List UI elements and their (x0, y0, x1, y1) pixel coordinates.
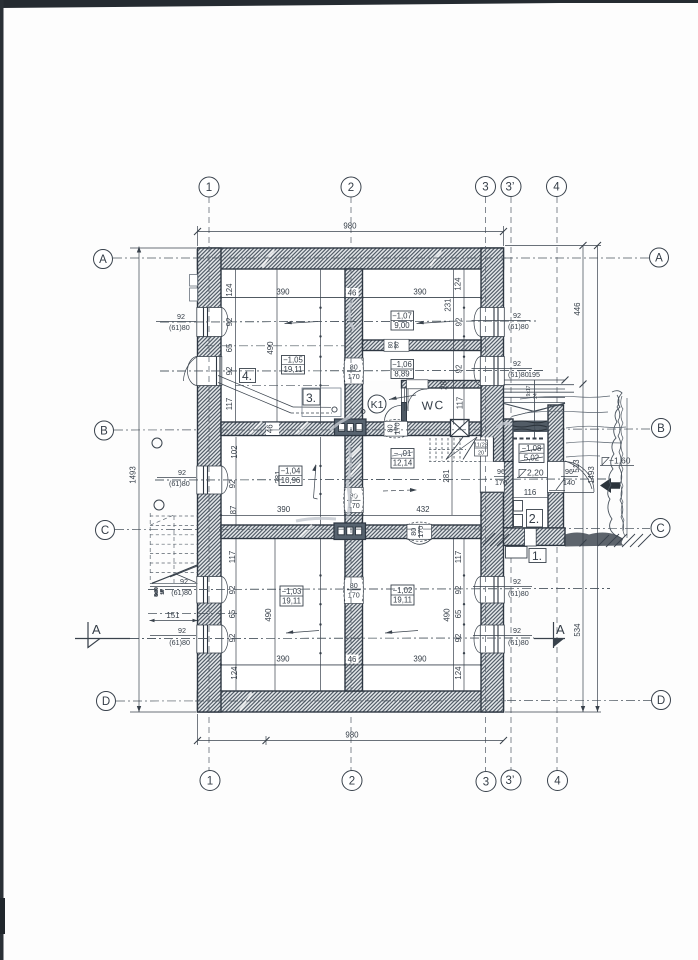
svg-text:2: 2 (348, 182, 354, 194)
svg-text:−1,05: −1,05 (283, 356, 303, 365)
svg-text:151: 151 (166, 611, 179, 620)
svg-text:92: 92 (513, 311, 521, 320)
svg-text:281: 281 (442, 469, 451, 482)
svg-text:170: 170 (393, 423, 402, 435)
svg-text:WC: WC (421, 398, 445, 413)
svg-text:92: 92 (177, 312, 185, 321)
svg-text:92: 92 (455, 318, 464, 327)
svg-text:A: A (92, 622, 101, 637)
svg-text:(61)80: (61)80 (508, 322, 529, 331)
svg-text:170: 170 (348, 591, 360, 600)
svg-text:−1,07: −1,07 (392, 312, 412, 321)
svg-text:390: 390 (276, 655, 290, 664)
svg-text:96: 96 (565, 467, 573, 476)
svg-text:10,96: 10,96 (281, 476, 301, 485)
svg-text:390: 390 (413, 655, 427, 664)
svg-text:−1,04: −1,04 (281, 467, 301, 476)
svg-text:−1,02: −1,02 (393, 586, 413, 595)
svg-text:2: 2 (349, 776, 355, 788)
svg-text:92: 92 (178, 468, 186, 477)
svg-text:19,11: 19,11 (284, 365, 303, 374)
svg-text:980: 980 (343, 222, 357, 231)
svg-text:D: D (102, 696, 110, 708)
svg-text:(61)80: (61)80 (169, 479, 190, 488)
svg-text:92: 92 (228, 634, 237, 643)
svg-text:19,11: 19,11 (282, 597, 301, 606)
svg-text:1493: 1493 (129, 466, 138, 484)
svg-text:390: 390 (276, 288, 290, 297)
svg-text:231: 231 (444, 298, 453, 311)
svg-text:980: 980 (345, 731, 359, 740)
svg-text:195: 195 (528, 370, 540, 379)
svg-text:65: 65 (225, 343, 234, 352)
svg-text:19,11: 19,11 (393, 596, 412, 605)
svg-text:3: 3 (483, 777, 489, 789)
svg-text:1: 1 (207, 776, 213, 788)
svg-text:92: 92 (178, 626, 186, 635)
svg-text:3: 3 (482, 182, 488, 194)
svg-text:92: 92 (513, 577, 521, 586)
svg-text:432: 432 (416, 505, 429, 514)
svg-text:390: 390 (277, 505, 291, 514)
svg-text:5x30: 5x30 (154, 587, 159, 597)
svg-text:490: 490 (443, 608, 452, 622)
svg-text:170: 170 (348, 372, 360, 381)
svg-text:46: 46 (266, 424, 275, 433)
svg-text:96: 96 (497, 467, 505, 476)
svg-text:24: 24 (533, 393, 539, 399)
svg-text:65: 65 (454, 609, 463, 618)
svg-text:170: 170 (416, 526, 425, 538)
svg-text:12,14: 12,14 (393, 459, 413, 468)
svg-text:117: 117 (456, 397, 465, 410)
svg-text:124: 124 (230, 666, 239, 680)
svg-text:−1,06: −1,06 (392, 360, 412, 369)
svg-text:A: A (99, 254, 107, 266)
svg-text:−1,03: −1,03 (282, 587, 302, 596)
svg-text:490: 490 (264, 608, 273, 622)
svg-text:3’: 3’ (506, 775, 515, 787)
svg-text:92: 92 (228, 480, 237, 489)
svg-text:390: 390 (413, 288, 427, 297)
svg-text:A: A (655, 253, 663, 265)
svg-text:1: 1 (206, 182, 212, 194)
svg-text:C: C (656, 523, 664, 535)
svg-text:65: 65 (228, 609, 237, 618)
svg-text:92: 92 (454, 586, 463, 595)
svg-text:3.: 3. (306, 391, 316, 405)
svg-text:490: 490 (266, 341, 275, 355)
svg-text:A: A (556, 622, 565, 637)
svg-text:1.: 1. (532, 549, 542, 563)
svg-text:92: 92 (228, 586, 237, 595)
svg-text:28: 28 (440, 381, 449, 390)
svg-text:D: D (657, 695, 665, 707)
svg-text:92: 92 (455, 365, 464, 374)
svg-text:92: 92 (513, 626, 521, 635)
svg-text:87: 87 (229, 506, 238, 515)
svg-text:9,00: 9,00 (394, 321, 410, 330)
svg-text:(61)80: (61)80 (508, 589, 529, 598)
svg-text:446: 446 (573, 302, 582, 316)
svg-text:116: 116 (524, 488, 537, 497)
svg-text:9x17: 9x17 (526, 385, 532, 396)
svg-text:K1: K1 (371, 399, 384, 411)
svg-text:4: 4 (554, 776, 561, 788)
svg-text:124: 124 (454, 277, 463, 291)
svg-text:124: 124 (225, 283, 234, 297)
svg-text:(61)80: (61)80 (508, 638, 529, 647)
svg-text:46: 46 (348, 289, 357, 298)
svg-text:117: 117 (454, 551, 463, 564)
svg-text:102: 102 (230, 445, 239, 458)
svg-text:C: C (101, 525, 109, 537)
svg-text:(61)80: (61)80 (169, 323, 190, 332)
svg-text:534: 534 (573, 623, 582, 637)
svg-text:2,20: 2,20 (527, 468, 544, 478)
svg-text:46: 46 (348, 655, 357, 664)
svg-text:117: 117 (225, 398, 234, 411)
svg-text:20: 20 (478, 451, 484, 457)
svg-text:B: B (100, 426, 108, 438)
svg-text:B: B (657, 423, 665, 435)
svg-text:124: 124 (454, 666, 463, 680)
svg-text:(61)80: (61)80 (169, 638, 190, 647)
svg-text:3’: 3’ (506, 182, 515, 194)
svg-text:80: 80 (395, 341, 401, 348)
svg-text:92: 92 (513, 359, 521, 368)
svg-text:(61)80: (61)80 (508, 370, 529, 379)
svg-text:4: 4 (553, 182, 560, 194)
svg-text:117: 117 (228, 551, 237, 564)
svg-text:2.: 2. (529, 512, 539, 526)
